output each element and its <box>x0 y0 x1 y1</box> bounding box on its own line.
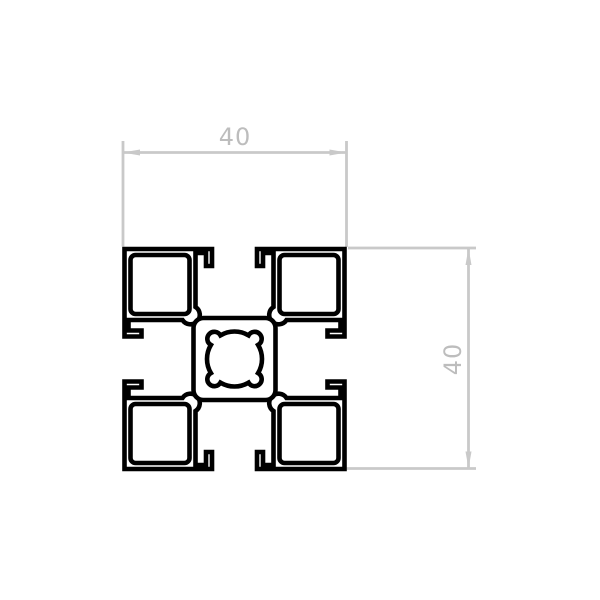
width-dimension-value: 40 <box>219 123 252 151</box>
width-arrow-left-icon <box>123 150 140 156</box>
corner-cavity-bottom-right <box>280 404 339 463</box>
corner-cavity-top-right <box>280 255 339 314</box>
technical-drawing-canvas: 40 40 <box>0 0 600 600</box>
profile-drawing-svg: 40 40 <box>0 0 600 600</box>
corner-cavity-bottom-left <box>131 404 190 463</box>
central-bore-outline <box>207 332 262 387</box>
height-dimension: 40 <box>345 248 476 469</box>
width-arrow-right-icon <box>330 150 347 156</box>
height-arrow-top-icon <box>466 248 472 265</box>
height-dimension-value: 40 <box>439 343 467 376</box>
width-dimension: 40 <box>123 123 347 247</box>
height-arrow-bottom-icon <box>466 452 472 469</box>
corner-cavity-top-left <box>131 255 190 314</box>
profile-cross-section <box>125 249 345 469</box>
